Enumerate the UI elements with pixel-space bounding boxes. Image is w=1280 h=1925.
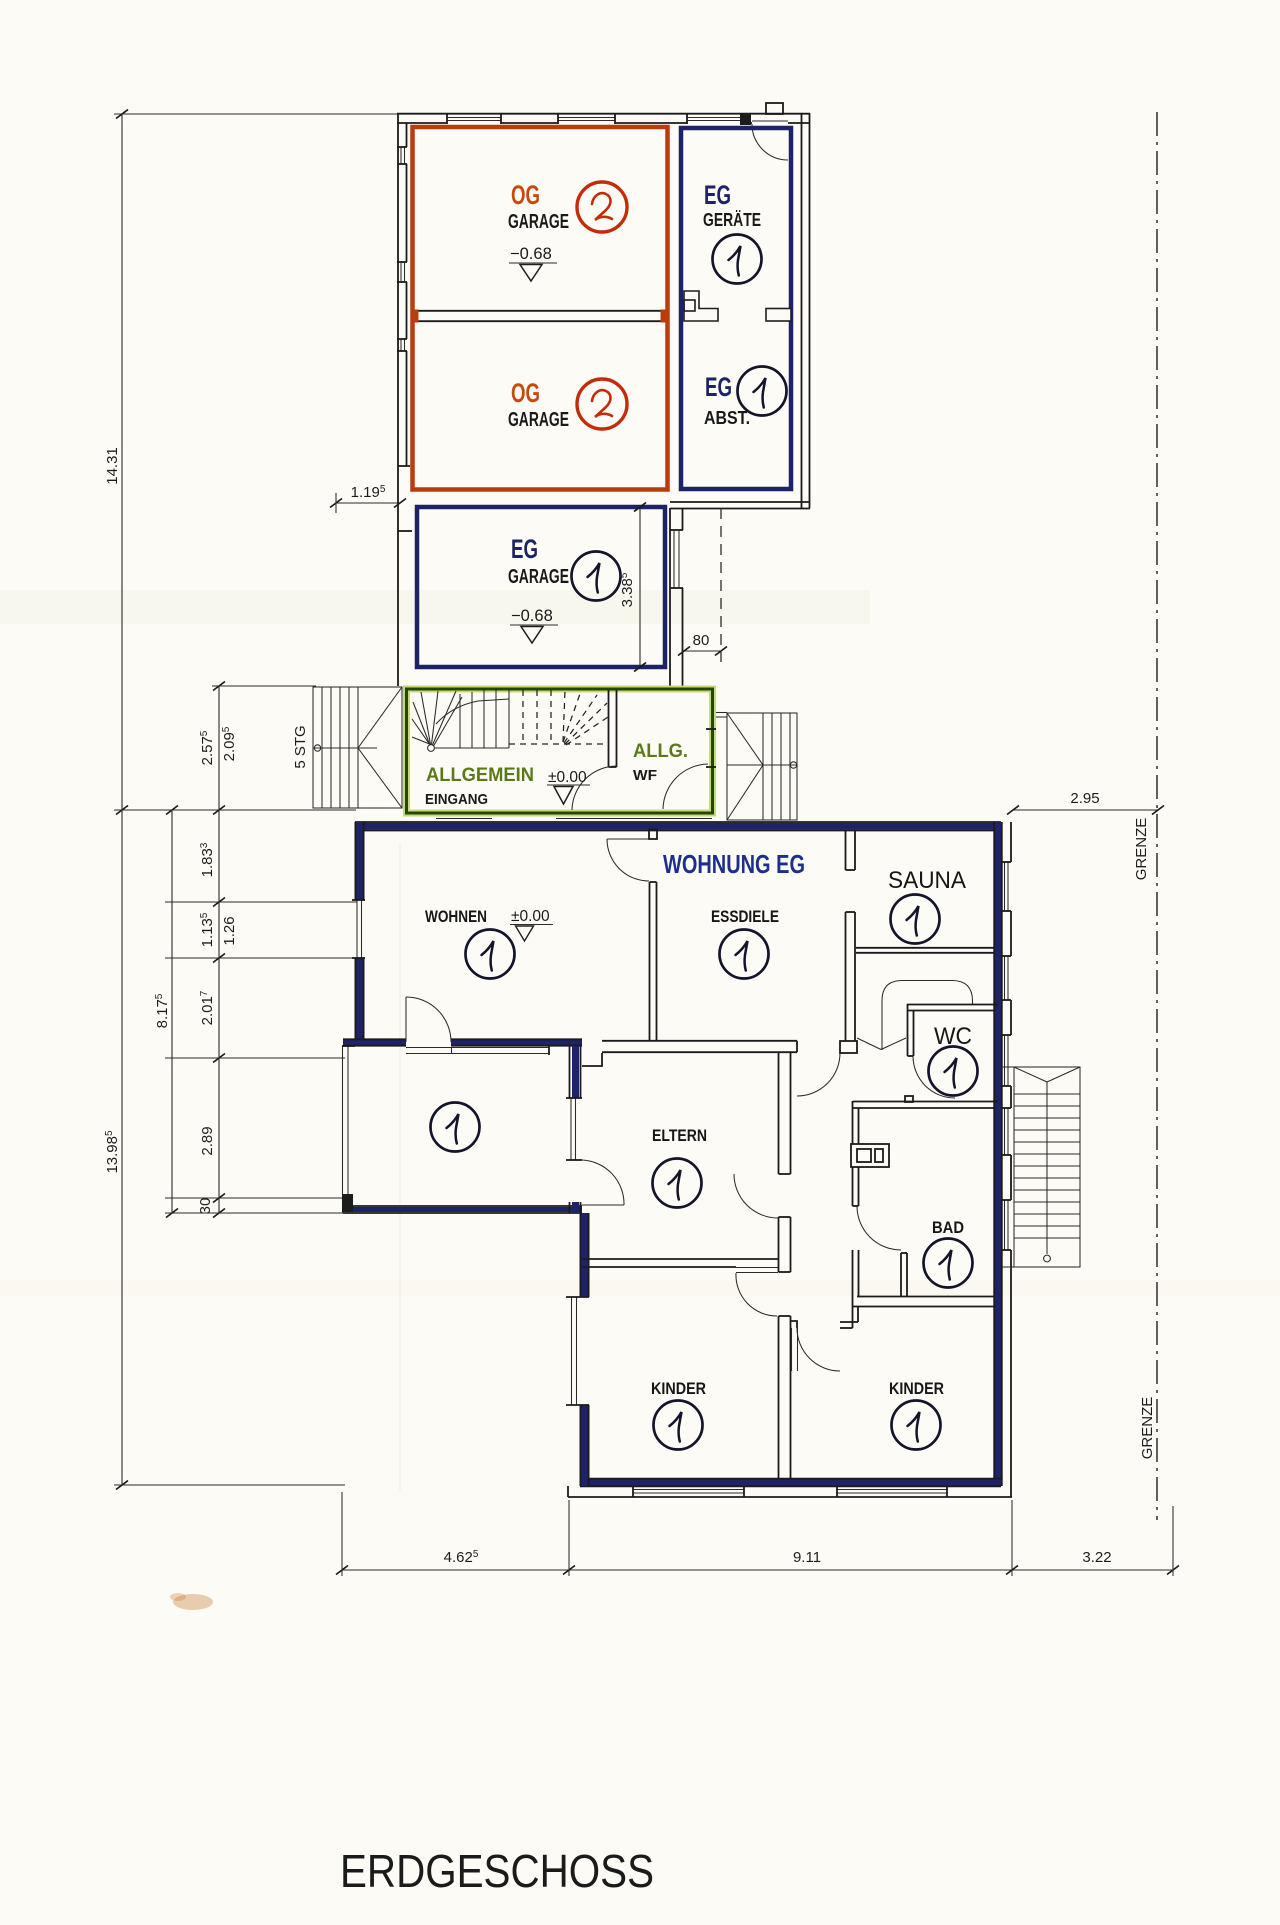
svg-text:BAD: BAD	[932, 1218, 964, 1237]
svg-text:WF: WF	[633, 767, 657, 784]
svg-text:GRENZE: GRENZE	[1139, 1397, 1156, 1460]
svg-text:ALLGEMEIN: ALLGEMEIN	[426, 765, 534, 786]
svg-text:WOHNUNG EG: WOHNUNG EG	[663, 849, 805, 879]
svg-text:1.26: 1.26	[221, 916, 238, 945]
svg-text:3.22: 3.22	[1082, 1549, 1111, 1566]
svg-text:OG: OG	[511, 180, 540, 210]
svg-text:ESSDIELE: ESSDIELE	[711, 907, 779, 926]
svg-text:GRENZE: GRENZE	[1133, 818, 1150, 881]
svg-text:−0.68: −0.68	[510, 245, 552, 263]
svg-text:WOHNEN: WOHNEN	[425, 907, 487, 926]
svg-text:9.11: 9.11	[793, 1549, 821, 1566]
svg-text:ABST.: ABST.	[704, 408, 750, 428]
svg-text:GERÄTE: GERÄTE	[703, 210, 761, 230]
svg-text:ELTERN: ELTERN	[652, 1126, 707, 1145]
svg-text:14.31: 14.31	[104, 447, 121, 485]
svg-text:80: 80	[693, 632, 710, 649]
svg-text:−0.68: −0.68	[511, 607, 553, 625]
svg-text:EINGANG: EINGANG	[425, 791, 488, 808]
svg-text:±0.00: ±0.00	[548, 769, 587, 786]
svg-text:GARAGE: GARAGE	[508, 409, 569, 431]
svg-text:OG: OG	[511, 378, 540, 408]
svg-text:KINDER: KINDER	[889, 1379, 944, 1398]
svg-text:EG: EG	[704, 180, 731, 210]
svg-text:GARAGE: GARAGE	[508, 211, 569, 233]
svg-text:13.985: 13.985	[104, 1130, 121, 1174]
svg-text:2.95: 2.95	[1070, 790, 1099, 807]
svg-text:±0.00: ±0.00	[511, 908, 550, 925]
svg-text:EG: EG	[705, 372, 732, 402]
svg-text:GARAGE: GARAGE	[508, 566, 569, 588]
svg-text:30: 30	[197, 1198, 214, 1215]
svg-text:KINDER: KINDER	[651, 1379, 706, 1398]
svg-text:5 STG: 5 STG	[292, 725, 309, 768]
svg-text:2.89: 2.89	[199, 1126, 216, 1155]
svg-text:EG: EG	[511, 534, 538, 564]
svg-text:SAUNA: SAUNA	[888, 867, 966, 894]
svg-text:ERDGESCHOSS: ERDGESCHOSS	[340, 1845, 654, 1897]
svg-text:ALLG.: ALLG.	[633, 741, 688, 762]
